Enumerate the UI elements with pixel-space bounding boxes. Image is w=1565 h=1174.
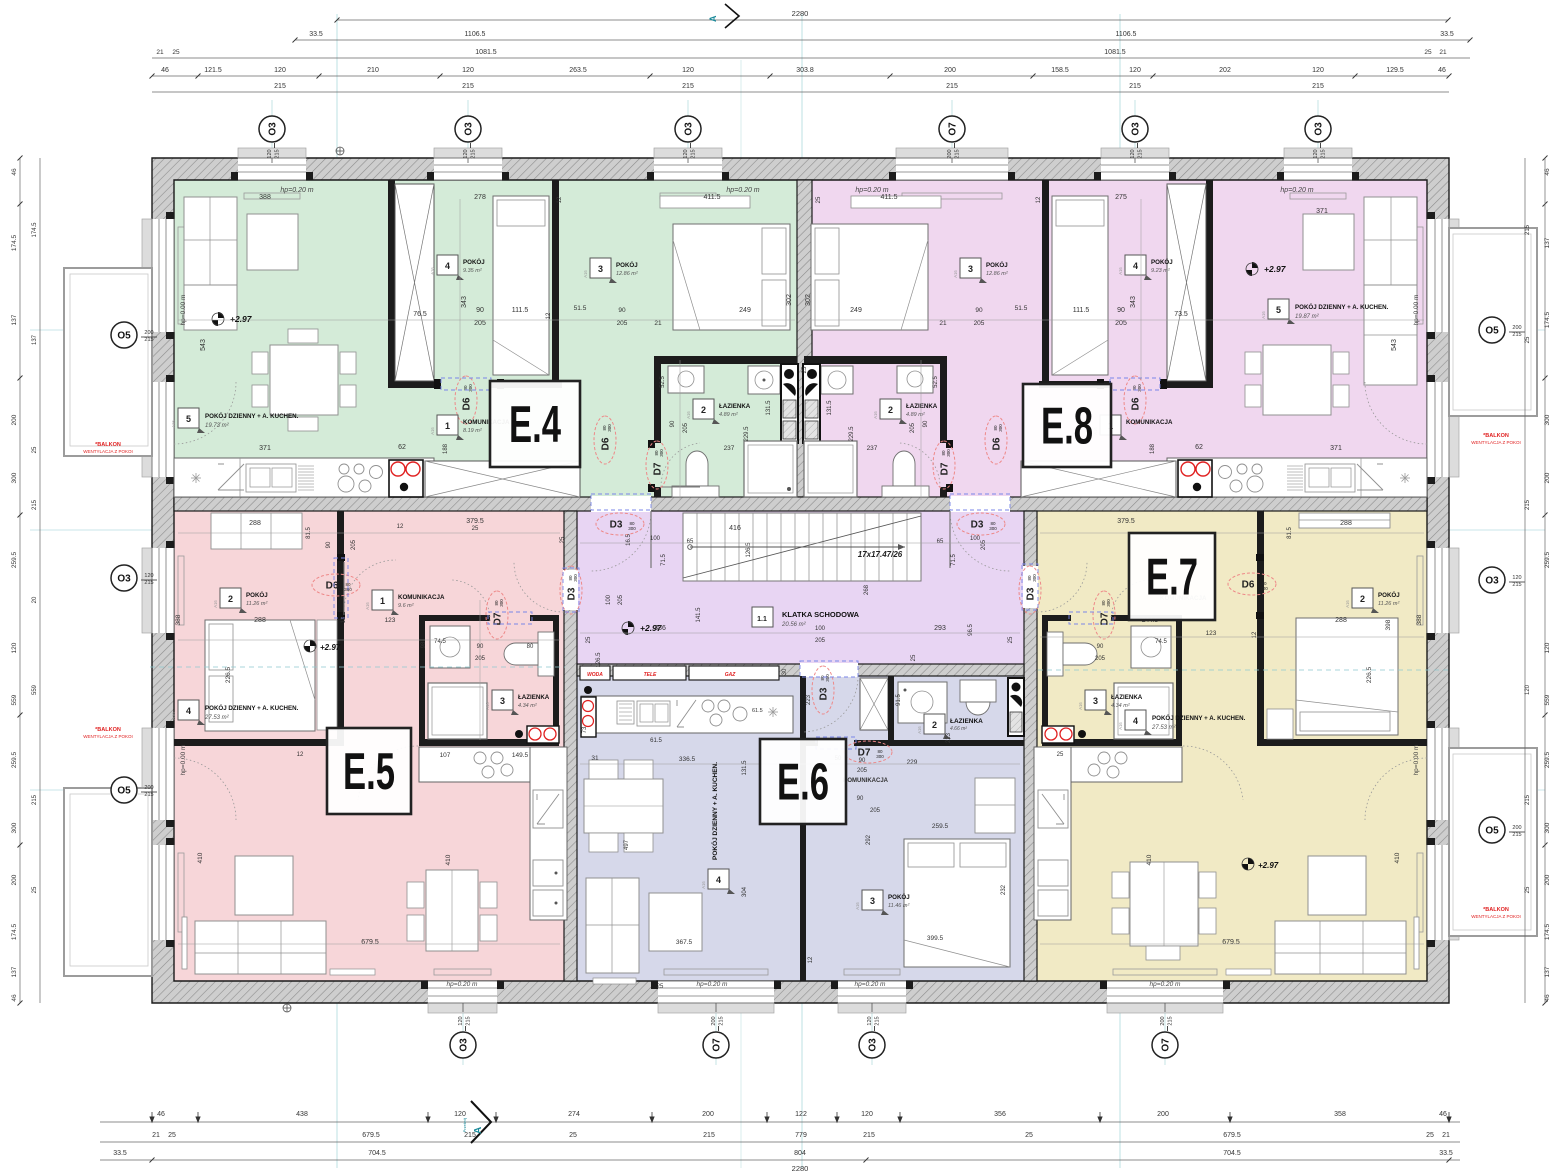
svg-text:229.5: 229.5 [744, 426, 750, 442]
svg-text:D6: D6 [601, 437, 612, 450]
svg-text:25: 25 [657, 984, 664, 990]
svg-text:371: 371 [1330, 445, 1342, 452]
svg-text:205: 205 [475, 656, 486, 662]
svg-text:71.5: 71.5 [951, 554, 957, 566]
svg-text:11.26 m²: 11.26 m² [1378, 601, 1399, 607]
svg-text:4: 4 [1133, 261, 1138, 271]
svg-text:120: 120 [683, 149, 689, 158]
svg-text:543: 543 [1391, 339, 1398, 351]
svg-text:200: 200 [1160, 1016, 1166, 1025]
svg-text:416: 416 [729, 525, 741, 532]
svg-text:9.23 m²: 9.23 m² [1151, 268, 1170, 274]
svg-text:358: 358 [1334, 1111, 1346, 1118]
svg-text:25: 25 [168, 1132, 176, 1139]
svg-text:200: 200 [144, 330, 153, 336]
svg-text:300: 300 [825, 674, 830, 682]
svg-text:61.5: 61.5 [650, 738, 662, 744]
svg-text:100: 100 [970, 536, 981, 542]
svg-text:215: 215 [719, 1016, 725, 1025]
svg-text:120: 120 [1313, 149, 1319, 158]
svg-text:371: 371 [259, 445, 271, 452]
svg-text:379.5: 379.5 [1117, 518, 1135, 525]
svg-text:388: 388 [259, 194, 271, 201]
svg-text:300: 300 [11, 822, 18, 833]
svg-text:4.34 m²: 4.34 m² [518, 703, 537, 709]
svg-text:E.4: E.4 [509, 396, 561, 454]
svg-text:A: A [708, 15, 718, 22]
svg-text:300: 300 [11, 472, 18, 483]
svg-text:300: 300 [659, 449, 664, 457]
svg-text:215: 215 [462, 83, 474, 90]
svg-text:A16: A16 [953, 270, 958, 278]
svg-text:259.5: 259.5 [932, 823, 949, 830]
svg-text:215: 215 [1525, 224, 1531, 235]
svg-text:300: 300 [1260, 586, 1268, 591]
svg-text:137: 137 [11, 966, 18, 977]
svg-text:215: 215 [703, 1132, 715, 1139]
svg-text:21: 21 [939, 320, 947, 327]
svg-text:A16: A16 [1078, 702, 1083, 710]
svg-text:120: 120 [1129, 67, 1141, 74]
svg-text:25: 25 [569, 1132, 577, 1139]
svg-text:62: 62 [1195, 444, 1203, 451]
svg-text:21: 21 [654, 320, 662, 327]
svg-text:131.5: 131.5 [766, 400, 772, 416]
svg-text:O5: O5 [1485, 326, 1499, 337]
svg-text:141.5: 141.5 [696, 607, 702, 623]
svg-text:O3: O3 [684, 122, 695, 136]
svg-text:O5: O5 [117, 786, 131, 797]
svg-text:259.5: 259.5 [1544, 751, 1551, 768]
svg-text:20.56 m²: 20.56 m² [781, 622, 807, 628]
svg-text:205: 205 [351, 539, 357, 550]
svg-text:90: 90 [975, 307, 983, 314]
svg-text:25: 25 [1525, 886, 1531, 893]
svg-text:E.7: E.7 [1146, 549, 1198, 607]
svg-text:46: 46 [11, 994, 18, 1002]
svg-text:215: 215 [275, 149, 281, 158]
svg-text:8.19 m²: 8.19 m² [463, 428, 482, 434]
svg-text:O5: O5 [117, 331, 131, 342]
svg-text:hp=0.00 m: hp=0.00 m [1413, 745, 1420, 776]
svg-text:*BALKON: *BALKON [1483, 433, 1509, 439]
svg-text:226.5: 226.5 [1366, 666, 1373, 683]
svg-text:30: 30 [782, 668, 788, 675]
svg-text:D6: D6 [326, 581, 339, 592]
svg-text:120: 120 [861, 1111, 873, 1118]
svg-text:123: 123 [385, 617, 396, 624]
svg-text:A16: A16 [1261, 311, 1266, 319]
svg-text:WENTYLACJA Z POKOI: WENTYLACJA Z POKOI [1471, 440, 1521, 445]
svg-text:275: 275 [1115, 194, 1127, 201]
svg-text:25: 25 [32, 446, 38, 453]
svg-text:46: 46 [157, 1111, 165, 1118]
svg-text:A16: A16 [1118, 722, 1123, 730]
svg-text:21: 21 [152, 1132, 160, 1139]
svg-text:A16: A16 [1345, 600, 1350, 608]
svg-text:4.89 m²: 4.89 m² [719, 412, 738, 418]
svg-text:76.5: 76.5 [413, 311, 427, 318]
svg-text:107: 107 [440, 752, 451, 759]
svg-text:71.5: 71.5 [661, 554, 667, 566]
svg-text:O3: O3 [868, 1038, 879, 1052]
svg-text:121.5: 121.5 [204, 67, 222, 74]
svg-text:288: 288 [1340, 520, 1352, 527]
svg-text:9.6 m²: 9.6 m² [398, 603, 414, 609]
svg-text:205: 205 [1115, 320, 1127, 327]
svg-text:223: 223 [946, 732, 952, 743]
svg-text:249: 249 [850, 307, 862, 314]
svg-text:12.86 m²: 12.86 m² [986, 271, 1008, 277]
svg-text:19.73 m²: 19.73 m² [205, 423, 230, 429]
svg-text:25: 25 [472, 526, 479, 532]
svg-text:438: 438 [296, 1111, 308, 1118]
svg-text:302: 302 [786, 294, 793, 306]
svg-text:O3: O3 [459, 1038, 470, 1052]
svg-text:+2.97: +2.97 [320, 643, 341, 652]
svg-text:POKÓJ DZIENNY + A. KUCHEN.: POKÓJ DZIENNY + A. KUCHEN. [1152, 714, 1246, 722]
svg-text:POKÓJ: POKÓJ [1378, 591, 1400, 599]
svg-text:205: 205 [870, 808, 881, 814]
svg-text:ŁAZIENKA: ŁAZIENKA [906, 403, 938, 410]
svg-text:A16: A16 [485, 702, 490, 710]
svg-text:300: 300 [573, 574, 578, 582]
svg-text:+2.97: +2.97 [1264, 264, 1287, 274]
svg-text:O7: O7 [1161, 1038, 1172, 1052]
svg-text:KLATKA SCHODOWA: KLATKA SCHODOWA [782, 610, 860, 619]
svg-text:4.66 m²: 4.66 m² [950, 726, 967, 732]
svg-text:WENTYLACJA Z POKOI: WENTYLACJA Z POKOI [83, 449, 133, 454]
svg-text:371: 371 [1316, 208, 1328, 215]
svg-text:300: 300 [989, 526, 997, 531]
svg-text:120: 120 [144, 573, 153, 579]
svg-text:300: 300 [628, 526, 636, 531]
svg-text:174.5: 174.5 [1544, 923, 1551, 940]
svg-text:343: 343 [1130, 296, 1137, 308]
svg-text:126.5: 126.5 [596, 652, 602, 668]
svg-text:O3: O3 [117, 574, 131, 585]
svg-text:11.26 m²: 11.26 m² [246, 601, 267, 607]
svg-text:137: 137 [1544, 237, 1551, 248]
svg-text:O7: O7 [712, 1038, 723, 1052]
svg-text:679.5: 679.5 [361, 939, 379, 946]
svg-text:205: 205 [857, 768, 868, 774]
svg-text:120: 120 [463, 149, 469, 158]
svg-text:543: 543 [200, 339, 207, 351]
svg-text:300: 300 [499, 599, 504, 607]
svg-text:O3: O3 [1314, 122, 1325, 136]
svg-text:205: 205 [910, 422, 916, 433]
svg-text:215: 215 [144, 337, 153, 343]
svg-text:12: 12 [397, 524, 404, 530]
svg-text:25: 25 [1057, 752, 1064, 758]
svg-text:hp=0.00 m: hp=0.00 m [180, 745, 187, 776]
svg-text:ŁAZIENKA: ŁAZIENKA [518, 694, 550, 701]
svg-text:19.87 m²: 19.87 m² [1295, 314, 1320, 320]
svg-text:120: 120 [267, 149, 273, 158]
svg-text:293: 293 [934, 625, 946, 632]
svg-text:hp=0.20 m: hp=0.20 m [697, 981, 728, 988]
svg-text:TELE: TELE [644, 672, 657, 678]
svg-text:292: 292 [866, 834, 872, 845]
svg-text:12: 12 [546, 312, 552, 319]
svg-text:+2.97: +2.97 [1258, 861, 1279, 870]
svg-text:411.5: 411.5 [881, 194, 898, 201]
svg-text:229: 229 [907, 759, 918, 766]
svg-text:100: 100 [606, 594, 612, 605]
svg-text:704.5: 704.5 [368, 1150, 386, 1157]
svg-text:A16: A16 [213, 600, 218, 608]
svg-text:288: 288 [1335, 617, 1347, 624]
svg-text:E.5: E.5 [343, 743, 395, 801]
svg-text:25: 25 [1525, 336, 1531, 343]
svg-text:497: 497 [624, 839, 630, 850]
svg-text:237: 237 [867, 445, 878, 452]
svg-text:A16: A16 [365, 602, 370, 610]
svg-text:120: 120 [1512, 575, 1521, 581]
svg-text:12: 12 [341, 616, 347, 623]
svg-text:46: 46 [1438, 67, 1446, 74]
svg-text:200: 200 [1512, 825, 1521, 831]
svg-text:52.5: 52.5 [933, 376, 939, 388]
svg-text:D7: D7 [940, 462, 951, 475]
svg-text:300: 300 [468, 384, 473, 392]
svg-text:300: 300 [1137, 384, 1142, 392]
svg-text:410: 410 [445, 854, 452, 865]
svg-text:90: 90 [477, 644, 484, 650]
svg-text:98: 98 [421, 641, 427, 648]
svg-text:200: 200 [702, 1111, 714, 1118]
svg-text:386: 386 [654, 625, 666, 632]
svg-text:300: 300 [1544, 414, 1551, 425]
svg-text:158.5: 158.5 [1051, 67, 1069, 74]
svg-text:215: 215 [1138, 149, 1144, 158]
svg-text:25: 25 [802, 366, 808, 373]
svg-text:804: 804 [794, 1150, 806, 1157]
svg-text:73: 73 [582, 726, 588, 733]
svg-text:WENTYLACJA Z POKOI: WENTYLACJA Z POKOI [83, 734, 133, 739]
svg-text:POKÓJ: POKÓJ [1151, 258, 1173, 266]
svg-text:205: 205 [683, 422, 689, 433]
svg-text:KOMUNIKACJA: KOMUNIKACJA [398, 594, 445, 601]
svg-text:237: 237 [724, 445, 735, 452]
svg-text:*BALKON: *BALKON [95, 727, 121, 733]
svg-text:120: 120 [458, 1016, 464, 1025]
svg-text:200: 200 [11, 874, 18, 885]
svg-text:278: 278 [474, 194, 486, 201]
svg-text:205: 205 [617, 320, 628, 327]
svg-text:POKÓJ: POKÓJ [246, 591, 268, 599]
svg-text:25: 25 [586, 636, 592, 643]
svg-text:215: 215 [466, 1016, 472, 1025]
svg-text:POKÓJ: POKÓJ [463, 258, 485, 266]
svg-text:356: 356 [994, 1111, 1006, 1118]
svg-text:E.6: E.6 [777, 754, 829, 812]
svg-text:D3: D3 [819, 687, 830, 700]
svg-text:27.53 m²: 27.53 m² [1151, 725, 1177, 731]
svg-text:4: 4 [1133, 716, 1138, 726]
svg-text:ŁAZIENKA: ŁAZIENKA [1111, 694, 1143, 701]
svg-text:4: 4 [716, 875, 721, 885]
svg-text:263.5: 263.5 [569, 67, 587, 74]
svg-text:215: 215 [1129, 83, 1141, 90]
svg-text:90: 90 [1097, 644, 1104, 650]
svg-text:704.5: 704.5 [1223, 1150, 1241, 1157]
svg-text:3: 3 [598, 264, 603, 274]
svg-text:1.1: 1.1 [757, 616, 767, 623]
svg-text:25: 25 [1424, 49, 1432, 56]
svg-text:202: 202 [1219, 67, 1231, 74]
svg-text:215: 215 [682, 83, 694, 90]
svg-text:120: 120 [1130, 149, 1136, 158]
svg-text:1: 1 [445, 421, 450, 431]
svg-text:300: 300 [876, 754, 884, 759]
svg-text:hp=0.20 m: hp=0.20 m [447, 981, 478, 988]
svg-text:hp=0.00 m: hp=0.00 m [180, 295, 187, 326]
svg-text:Przekrój: Przekrój [462, 1118, 467, 1133]
svg-text:200: 200 [944, 67, 956, 74]
svg-text:POKÓJ: POKÓJ [616, 261, 638, 269]
svg-text:D3: D3 [971, 520, 984, 531]
svg-text:ŁAZIENKA: ŁAZIENKA [719, 403, 751, 410]
svg-text:A16: A16 [686, 411, 691, 419]
svg-text:31: 31 [591, 755, 599, 762]
svg-text:137: 137 [32, 334, 38, 345]
svg-text:398: 398 [1385, 619, 1392, 630]
svg-text:25: 25 [32, 886, 38, 893]
svg-text:111.5: 111.5 [512, 307, 529, 314]
svg-text:410: 410 [1394, 852, 1401, 863]
svg-text:304: 304 [742, 886, 748, 897]
svg-text:205: 205 [981, 539, 987, 550]
svg-text:D6: D6 [462, 397, 473, 410]
svg-text:5: 5 [186, 414, 191, 424]
svg-text:A16: A16 [873, 411, 878, 419]
svg-text:137: 137 [11, 314, 18, 325]
svg-text:91.5: 91.5 [896, 694, 902, 706]
svg-text:D3: D3 [567, 587, 578, 600]
svg-text:D7: D7 [493, 612, 504, 625]
svg-text:120: 120 [462, 67, 474, 74]
svg-text:174.5: 174.5 [11, 923, 18, 940]
svg-text:137: 137 [1544, 966, 1551, 977]
svg-text:215: 215 [1512, 582, 1521, 588]
svg-text:679.5: 679.5 [1222, 939, 1240, 946]
svg-text:25: 25 [1426, 1132, 1434, 1139]
svg-text:12: 12 [808, 956, 814, 963]
svg-text:200: 200 [1544, 472, 1551, 483]
svg-text:200: 200 [144, 785, 153, 791]
svg-text:O7: O7 [948, 122, 959, 136]
svg-text:25: 25 [1008, 636, 1014, 643]
svg-text:131.5: 131.5 [827, 400, 833, 416]
svg-text:259.5: 259.5 [11, 551, 18, 568]
svg-text:hp=0.20 m: hp=0.20 m [1150, 981, 1181, 988]
svg-text:120: 120 [1525, 684, 1531, 695]
svg-text:302: 302 [805, 294, 812, 306]
svg-text:399.5: 399.5 [927, 935, 944, 942]
svg-text:90: 90 [326, 541, 332, 548]
svg-text:D6: D6 [992, 437, 1003, 450]
svg-text:4: 4 [445, 261, 450, 271]
svg-text:410: 410 [1146, 854, 1153, 865]
svg-text:65: 65 [937, 539, 944, 545]
svg-text:73.5: 73.5 [1174, 311, 1188, 318]
svg-text:300: 300 [1106, 599, 1111, 607]
svg-text:80: 80 [527, 644, 534, 650]
svg-text:188: 188 [1150, 443, 1156, 454]
svg-text:120: 120 [682, 67, 694, 74]
svg-text:4: 4 [186, 706, 191, 716]
svg-text:O5: O5 [1485, 826, 1499, 837]
svg-text:174.5: 174.5 [11, 234, 18, 251]
svg-text:215: 215 [1525, 794, 1531, 805]
svg-text:2280: 2280 [792, 9, 809, 18]
svg-text:O3: O3 [268, 122, 279, 136]
svg-text:336.5: 336.5 [679, 756, 696, 763]
svg-text:215: 215 [144, 792, 153, 798]
svg-text:hp=0.20 m: hp=0.20 m [726, 187, 759, 194]
svg-text:120: 120 [1544, 642, 1551, 653]
svg-text:O3: O3 [1131, 122, 1142, 136]
svg-text:D7: D7 [653, 462, 664, 475]
svg-text:205: 205 [474, 320, 486, 327]
svg-text:A16: A16 [430, 427, 435, 435]
svg-text:hp=0.20 m: hp=0.20 m [855, 187, 888, 194]
svg-text:hp=0.20 m: hp=0.20 m [1280, 187, 1313, 194]
svg-text:A: A [473, 1127, 484, 1134]
svg-text:200: 200 [1512, 325, 1521, 331]
svg-text:300: 300 [1544, 822, 1551, 833]
svg-text:200: 200 [711, 1016, 717, 1025]
svg-text:hp=0.20 m: hp=0.20 m [280, 187, 313, 194]
svg-text:367.5: 367.5 [676, 939, 693, 946]
svg-text:96.5: 96.5 [968, 624, 974, 636]
svg-text:A16: A16 [917, 726, 922, 734]
svg-text:388: 388 [1416, 614, 1423, 625]
svg-text:223: 223 [806, 694, 812, 705]
svg-text:D7: D7 [858, 748, 871, 759]
svg-text:1106.5: 1106.5 [1116, 31, 1137, 38]
svg-text:559: 559 [11, 694, 18, 705]
svg-text:679.5: 679.5 [362, 1132, 380, 1139]
svg-text:205: 205 [974, 320, 985, 327]
svg-text:205: 205 [618, 594, 624, 605]
svg-text:65: 65 [687, 539, 694, 545]
svg-text:21: 21 [1442, 1132, 1450, 1139]
svg-text:20: 20 [32, 596, 38, 603]
svg-text:4.34 m²: 4.34 m² [1111, 703, 1130, 709]
svg-text:90: 90 [1117, 307, 1125, 314]
svg-text:120: 120 [274, 67, 286, 74]
svg-text:25: 25 [560, 536, 566, 543]
svg-text:12: 12 [557, 196, 563, 203]
svg-text:779: 779 [795, 1132, 807, 1139]
svg-text:111.5: 111.5 [1073, 307, 1090, 314]
svg-text:226.5: 226.5 [225, 666, 232, 683]
svg-text:D6: D6 [1131, 397, 1142, 410]
svg-text:GAZ: GAZ [725, 672, 737, 678]
svg-text:300: 300 [607, 424, 612, 432]
svg-text:259.5: 259.5 [1544, 551, 1551, 568]
svg-text:11.46 m²: 11.46 m² [888, 903, 909, 909]
svg-text:249: 249 [739, 307, 751, 314]
svg-text:410: 410 [197, 852, 204, 863]
svg-text:205: 205 [815, 638, 826, 644]
svg-text:174.5: 174.5 [1544, 311, 1551, 328]
svg-text:100: 100 [815, 626, 826, 632]
svg-text:81.5: 81.5 [1287, 527, 1293, 539]
